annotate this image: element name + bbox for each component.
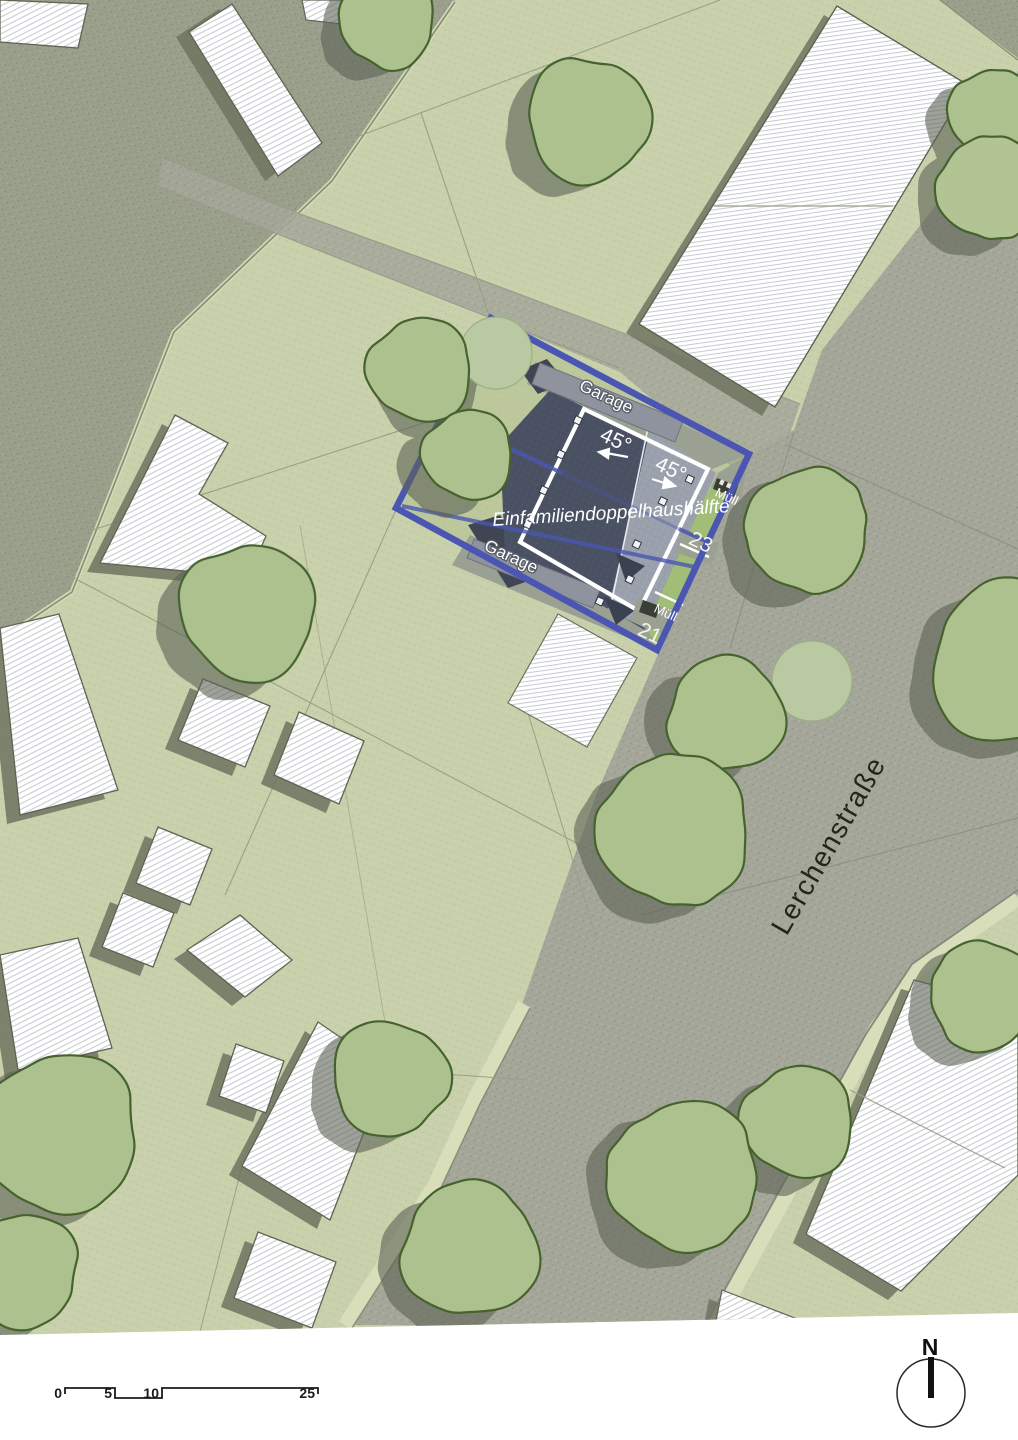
svg-text:10: 10 [143, 1385, 159, 1401]
svg-text:25: 25 [299, 1385, 315, 1401]
svg-text:5: 5 [104, 1385, 112, 1401]
svg-text:N: N [922, 1334, 939, 1360]
svg-text:0: 0 [54, 1385, 62, 1401]
